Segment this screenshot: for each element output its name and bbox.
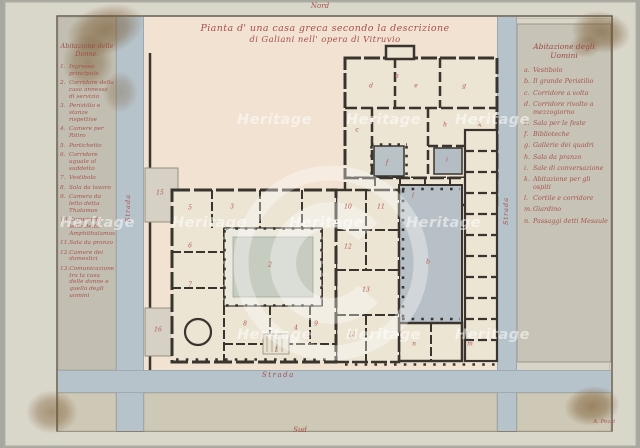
legend-item: 2.Corridore della casa annessa di serviz… [60, 80, 115, 100]
plan-title-line2: di Galiani nell' opera di Vitruvio [160, 35, 490, 45]
street-label-left: Strada [124, 194, 132, 222]
legend-item-number: 1. [60, 64, 69, 78]
legend-item-number: 11. [60, 240, 69, 247]
legend-item-text: Corridore rivolto a mezzogiorno [533, 101, 608, 116]
legend-item: n.Passaggi detti Mesaule [524, 218, 608, 226]
legend-item: 11.Sala da pranzo [60, 240, 115, 247]
legend-item-number: 7. [60, 175, 69, 182]
legend-item: g.Gallerie dei quadri [524, 142, 608, 150]
legend-item-text: Sale di conversazione [533, 165, 608, 173]
legend-item: i.Sale di conversazione [524, 165, 608, 173]
legend-item-number: d. [524, 101, 533, 116]
street-label-right: Strada [502, 197, 510, 225]
legend-item-number: h. [524, 154, 533, 162]
legend-item-text: Vestibolo [533, 67, 608, 75]
legend-right-list: a.Vestibolob.Il grande Peristilioc.Corri… [524, 67, 608, 229]
legend-item-text: Giardino [533, 206, 608, 214]
legend-item-text: Biblioteche [533, 131, 608, 139]
legend-item-number: n. [524, 218, 533, 226]
legend-item: 7.Vestibolo [60, 175, 115, 182]
legend-item-text: Sala da pranzo [69, 240, 115, 247]
legend-left-list: 1.Ingresso principale2.Corridore della c… [60, 64, 115, 303]
legend-item: b.Il grande Peristilio [524, 78, 608, 86]
north-label: Nord [288, 2, 352, 10]
legend-item-number: 12. [60, 250, 69, 264]
legend-item-text: Peristilio e stanze rispettive [69, 103, 115, 123]
legend-item: e.Sala per le feste [524, 120, 608, 128]
legend-item-text: Camere dei domestici [69, 250, 115, 264]
legend-item: 8.Sala da lavoro [60, 185, 115, 192]
artwork-photo: Pianta d' una casa greca secondo la desc… [0, 0, 640, 448]
legend-item-text: Corridore della casa annessa di servizio [69, 80, 115, 100]
legend-item-number: e. [524, 120, 533, 128]
south-label: Sud [268, 426, 332, 434]
legend-right-header-line1: Abitazione degli [517, 42, 611, 51]
legend-item: 6.Corridore uguale al suddetto [60, 152, 115, 172]
street-label-bottom: Strada [262, 371, 295, 379]
legend-item-text: Corridore a volta [533, 90, 608, 98]
legend-right-header: Abitazione degli Uomini [517, 42, 611, 61]
legend-item-text: Il grande Peristilio [533, 78, 608, 86]
legend-item-number: 4. [60, 126, 69, 140]
legend-item-number: i. [524, 165, 533, 173]
legend-item-text: Camera da letto detta Thalamos [69, 194, 115, 214]
legend-item: 3.Peristilio e stanze rispettive [60, 103, 115, 123]
legend-item: 1.Ingresso principale [60, 64, 115, 78]
legend-item-text: Sala per le feste [533, 120, 608, 128]
legend-item-text: Sala da pranzo [533, 154, 608, 162]
plan-title-line1: Pianta d' una casa greca secondo la desc… [160, 23, 490, 34]
legend-item: f.Biblioteche [524, 131, 608, 139]
legend-item: 5.Portichetto [60, 143, 115, 150]
legend-item: 9.Camera da letto detta Thalamos [60, 194, 115, 214]
legend-item-text: Abitazione per gli ospiti [533, 176, 608, 191]
legend-item-text: Comunicazione tra la casa delle donne e … [69, 266, 115, 300]
legend-item-number: k. [524, 176, 533, 191]
legend-item: a.Vestibolo [524, 67, 608, 75]
legend-item: h.Sala da pranzo [524, 154, 608, 162]
legend-item: m.Giardino [524, 206, 608, 214]
legend-item-text: Portichetto [69, 143, 115, 150]
legend-left-header-line2: Donne. [58, 50, 116, 58]
legend-item-number: b. [524, 78, 533, 86]
legend-item-text: Sala da lavoro [69, 185, 115, 192]
legend-item-number: 13. [60, 266, 69, 300]
legend-item: c.Corridore a volta [524, 90, 608, 98]
legend-item-number: 9. [60, 194, 69, 214]
legend-item-text: Passaggi detti Mesaule [533, 218, 608, 226]
legend-item: 10.Camera da letto detta Amphithalamos [60, 217, 115, 237]
legend-item-number: 3. [60, 103, 69, 123]
legend-item-number: g. [524, 142, 533, 150]
legend-item: 12.Camere dei domestici [60, 250, 115, 264]
legend-item: 13.Comunicazione tra la casa delle donne… [60, 266, 115, 300]
legend-item-number: 2. [60, 80, 69, 100]
legend-item-number: a. [524, 67, 533, 75]
legend-item: 4.Camere per Ritiro [60, 126, 115, 140]
signature: A. Pozzi [560, 419, 615, 425]
legend-left-header: Abitazione delle Donne. [58, 42, 116, 58]
legend-item-number: c. [524, 90, 533, 98]
legend-item-text: Vestibolo [69, 175, 115, 182]
legend-item-text: Corridore uguale al suddetto [69, 152, 115, 172]
legend-item: l.Cortile e corridore [524, 195, 608, 203]
legend-left-header-line1: Abitazione delle [58, 42, 116, 50]
legend-item-text: Gallerie dei quadri [533, 142, 608, 150]
legend-item-text: Cortile e corridore [533, 195, 608, 203]
legend-item-number: 5. [60, 143, 69, 150]
legend-item-number: f. [524, 131, 533, 139]
legend-item-number: 6. [60, 152, 69, 172]
legend-item-number: l. [524, 195, 533, 203]
legend-item-number: 10. [60, 217, 69, 237]
legend-item-text: Camere per Ritiro [69, 126, 115, 140]
legend-right-header-line2: Uomini [517, 51, 611, 60]
legend-item-text: Ingresso principale [69, 64, 115, 78]
legend-item: k.Abitazione per gli ospiti [524, 176, 608, 191]
legend-item-number: m. [524, 206, 533, 214]
legend-item: d.Corridore rivolto a mezzogiorno [524, 101, 608, 116]
legend-item-number: 8. [60, 185, 69, 192]
legend-item-text: Camera da letto detta Amphithalamos [69, 217, 115, 237]
